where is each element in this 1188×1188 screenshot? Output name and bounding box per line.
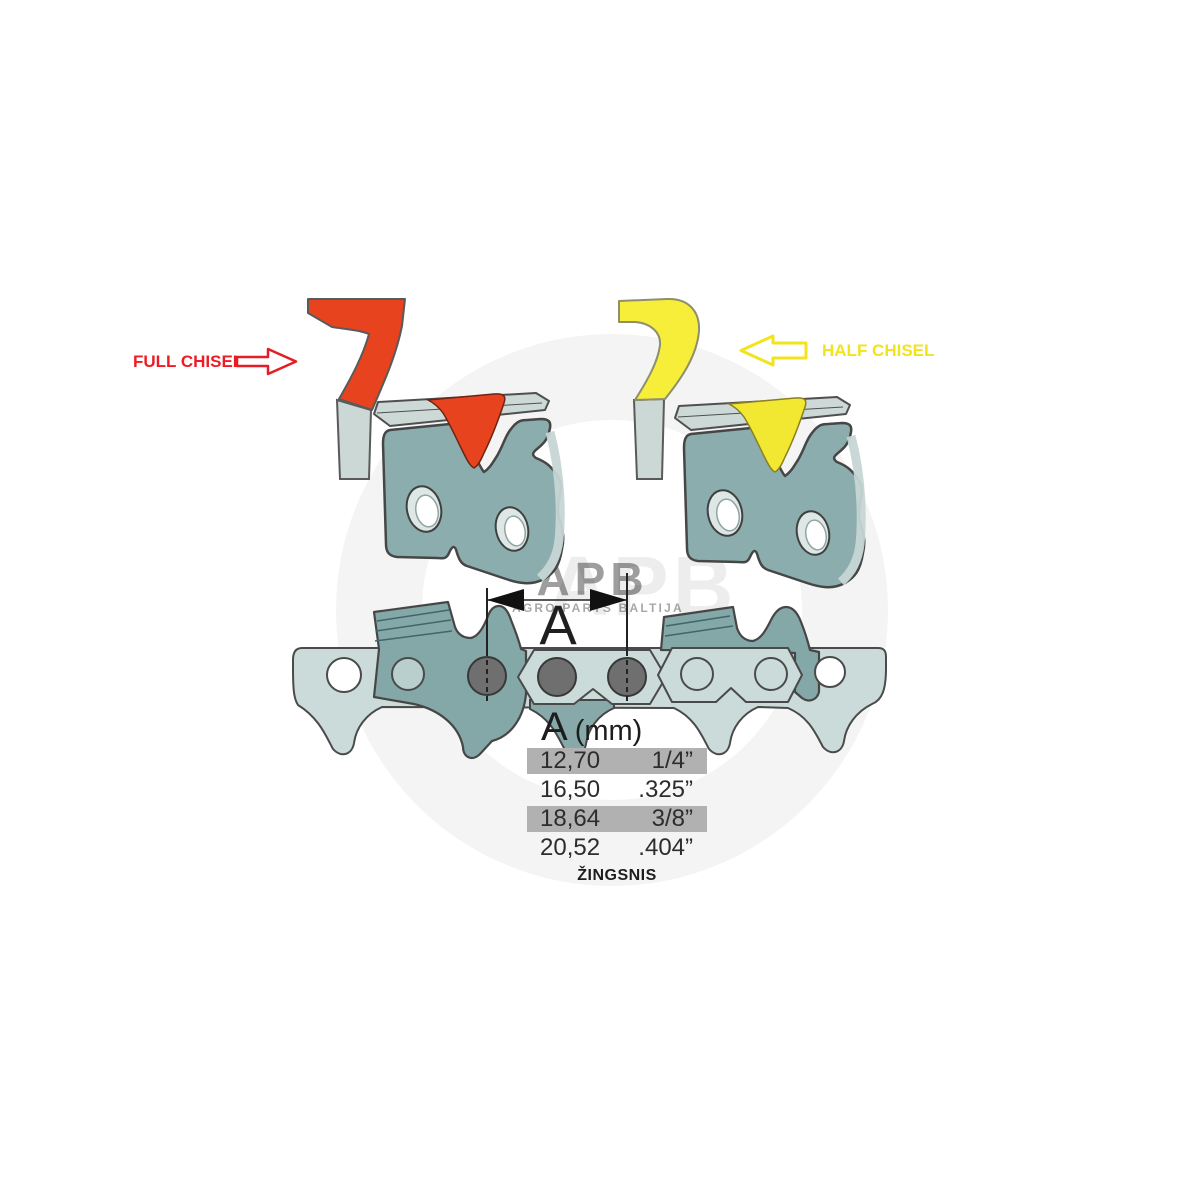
- pitch-table-caption: ŽINGSNIS: [527, 867, 707, 885]
- pitch-dimension-letter: A: [530, 596, 586, 654]
- pitch-table: A(mm) 12,70 1/4” 16,50 .325” 18,64 3/8” …: [527, 706, 707, 885]
- chain-hole-empty: [327, 658, 361, 692]
- full-chisel-arrow-icon: [237, 349, 296, 374]
- chainsaw-chain-illustration: [0, 0, 1188, 1188]
- half-chisel-arrow-icon: [741, 336, 806, 365]
- pitch-mm-value: 16,50: [540, 777, 600, 803]
- chain-rivet-light: [392, 658, 424, 690]
- pitch-mm-value: 20,52: [540, 835, 600, 861]
- full-chisel-profile-shank: [337, 400, 371, 479]
- half-chisel-profile-shank: [634, 399, 664, 479]
- pitch-table-header-letter: A: [541, 705, 568, 749]
- dimension-arrowhead-right: [590, 589, 627, 611]
- half-chisel-profile-blade: [619, 299, 699, 400]
- pitch-inch-value: .325”: [638, 777, 693, 803]
- pitch-table-row: 16,50 .325”: [527, 777, 707, 803]
- cutter-link-half-chisel: [675, 397, 864, 587]
- cutter-link-full-chisel: [374, 393, 563, 583]
- pitch-table-header: A(mm): [527, 706, 707, 748]
- pitch-inch-value: 3/8”: [652, 806, 693, 832]
- pitch-table-row: 18,64 3/8”: [527, 806, 707, 832]
- pitch-table-row: 20,52 .404”: [527, 835, 707, 861]
- full-chisel-label: FULL CHISEL: [133, 352, 243, 372]
- half-chisel-label: HALF CHISEL: [822, 341, 934, 361]
- pitch-mm-value: 12,70: [540, 748, 600, 774]
- pitch-inch-value: 1/4”: [652, 748, 693, 774]
- chain-rivet-dark: [538, 658, 576, 696]
- pitch-inch-value: .404”: [638, 835, 693, 861]
- pitch-table-row: 12,70 1/4”: [527, 748, 707, 774]
- chain-hole-empty: [815, 657, 845, 687]
- pitch-mm-value: 18,64: [540, 806, 600, 832]
- pitch-table-header-unit: (mm): [575, 715, 643, 747]
- chain-rivet-boss: [681, 658, 713, 690]
- product-diagram-page: { "annotations": { "full_chisel": { "lab…: [0, 0, 1188, 1188]
- chain-rivet-boss: [755, 658, 787, 690]
- full-chisel-profile-blade: [308, 299, 405, 410]
